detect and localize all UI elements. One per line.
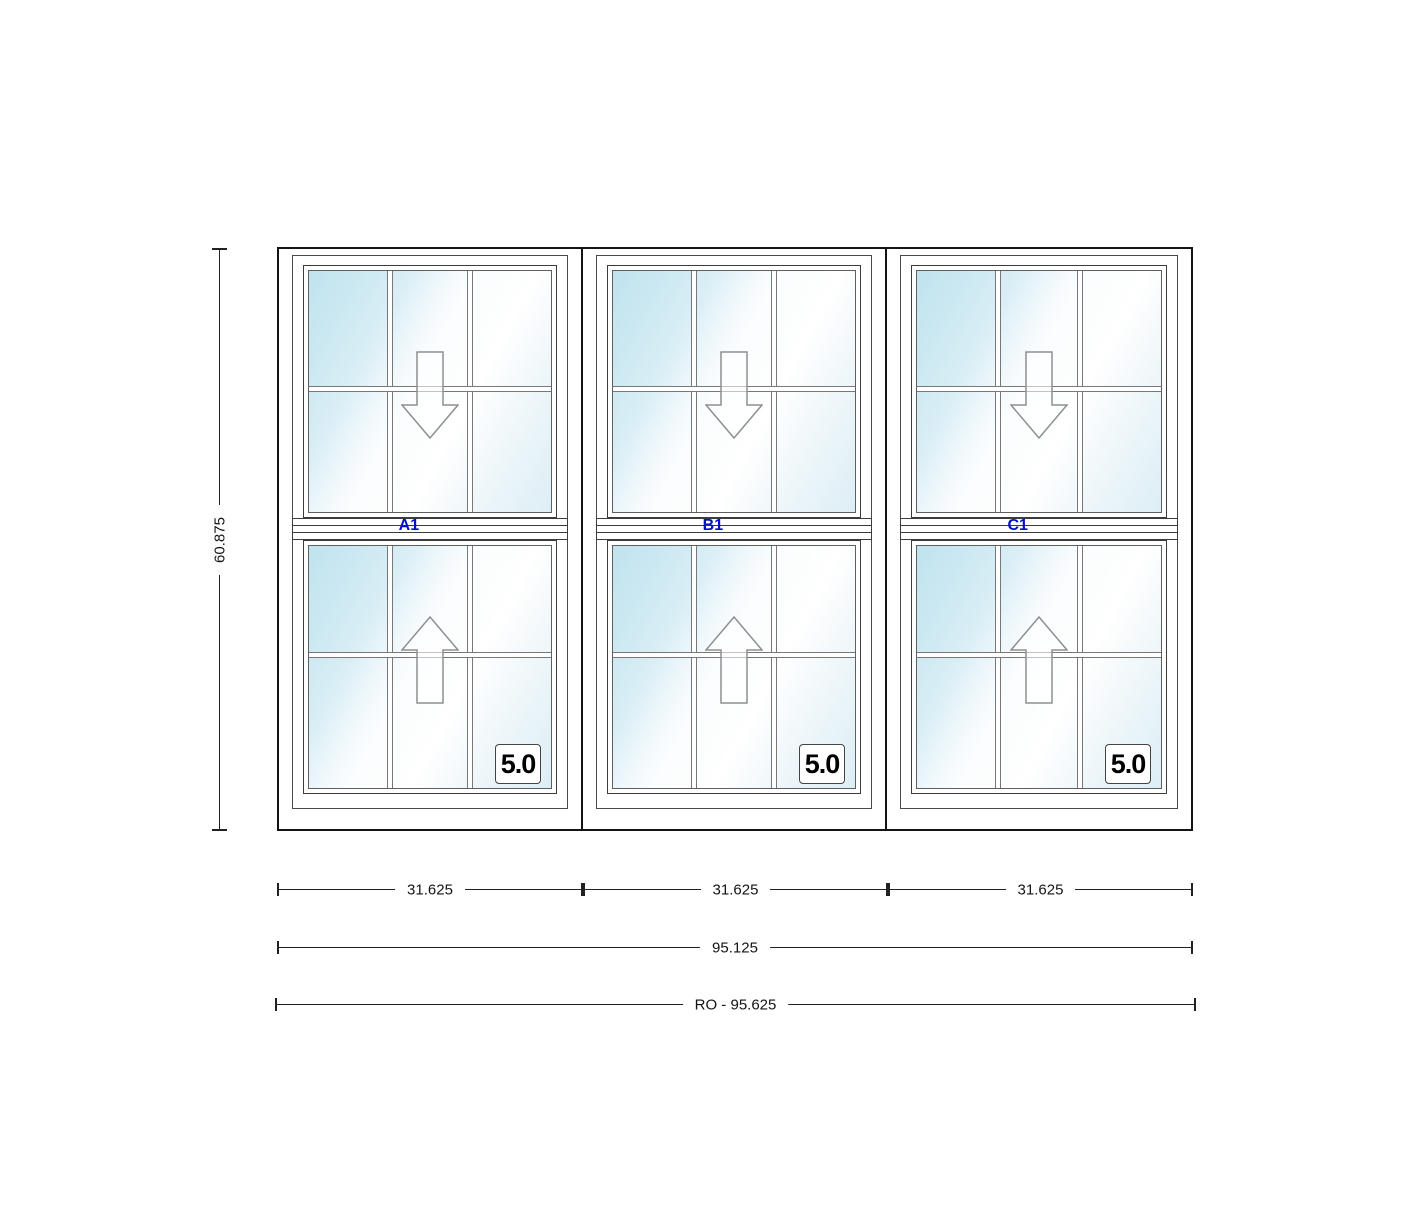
dimension-tick xyxy=(277,883,279,896)
meeting-rail xyxy=(900,518,1178,540)
drawing-canvas: 60.875 A1 xyxy=(0,0,1412,1207)
lower-sash-glass: 5.0 xyxy=(308,545,552,789)
meeting-rail xyxy=(596,518,872,540)
upper-sash xyxy=(607,265,861,518)
muntin-bar xyxy=(995,546,1001,788)
dimension-tick xyxy=(888,883,890,896)
upper-sash-glass xyxy=(308,270,552,513)
sash-up-arrow-icon xyxy=(401,616,459,704)
window-unit-c[interactable]: C1 5.0 xyxy=(887,249,1191,829)
height-dimension-label: 60.875 xyxy=(212,505,229,575)
dimension-tick xyxy=(277,941,279,954)
overall-width-label: 95.125 xyxy=(700,939,770,956)
window-unit-a[interactable]: A1 5.0 xyxy=(279,249,583,829)
lower-sash: 5.0 xyxy=(911,540,1167,794)
unit-label: B1 xyxy=(703,515,723,537)
muntin-bar xyxy=(691,546,697,788)
dimension-tick xyxy=(1191,941,1193,954)
glass-rating-badge: 5.0 xyxy=(1105,744,1151,784)
unit-c-width-dimension: 31.625 xyxy=(888,883,1193,896)
dimension-tick xyxy=(1194,998,1196,1011)
window-assembly: A1 5.0 xyxy=(277,247,1193,831)
sash-down-arrow-icon xyxy=(1010,351,1068,439)
dimension-tick xyxy=(212,248,227,250)
glass-rating-badge: 5.0 xyxy=(799,744,845,784)
upper-sash-glass xyxy=(612,270,856,513)
muntin-bar xyxy=(771,546,777,788)
sash-up-arrow-icon xyxy=(705,616,763,704)
dimension-tick xyxy=(1191,883,1193,896)
window-unit-b[interactable]: B1 5.0 xyxy=(583,249,887,829)
lower-sash: 5.0 xyxy=(607,540,861,794)
lower-sash-glass: 5.0 xyxy=(612,545,856,789)
muntin-bar xyxy=(467,546,473,788)
unit-c-width-label: 31.625 xyxy=(1006,881,1076,898)
unit-a-width-label: 31.625 xyxy=(395,881,465,898)
upper-sash xyxy=(303,265,557,518)
sash-down-arrow-icon xyxy=(401,351,459,439)
muntin-bar xyxy=(387,546,393,788)
dimension-tick xyxy=(275,998,277,1011)
dimension-tick xyxy=(212,829,227,831)
unit-b-width-label: 31.625 xyxy=(701,881,771,898)
rough-opening-dimension: RO - 95.625 xyxy=(275,998,1196,1011)
upper-sash-glass xyxy=(916,270,1162,513)
dimension-tick xyxy=(583,883,585,896)
unit-label: A1 xyxy=(399,515,419,537)
lower-sash-glass: 5.0 xyxy=(916,545,1162,789)
overall-width-dimension: 95.125 xyxy=(277,941,1193,954)
lower-sash: 5.0 xyxy=(303,540,557,794)
muntin-bar xyxy=(1077,546,1083,788)
unit-label: C1 xyxy=(1007,515,1027,537)
sash-down-arrow-icon xyxy=(705,351,763,439)
unit-b-width-dimension: 31.625 xyxy=(583,883,888,896)
rough-opening-label: RO - 95.625 xyxy=(683,996,789,1013)
glass-rating-badge: 5.0 xyxy=(495,744,541,784)
meeting-rail xyxy=(292,518,568,540)
height-dimension: 60.875 xyxy=(212,248,227,831)
sash-up-arrow-icon xyxy=(1010,616,1068,704)
upper-sash xyxy=(911,265,1167,518)
unit-a-width-dimension: 31.625 xyxy=(277,883,583,896)
